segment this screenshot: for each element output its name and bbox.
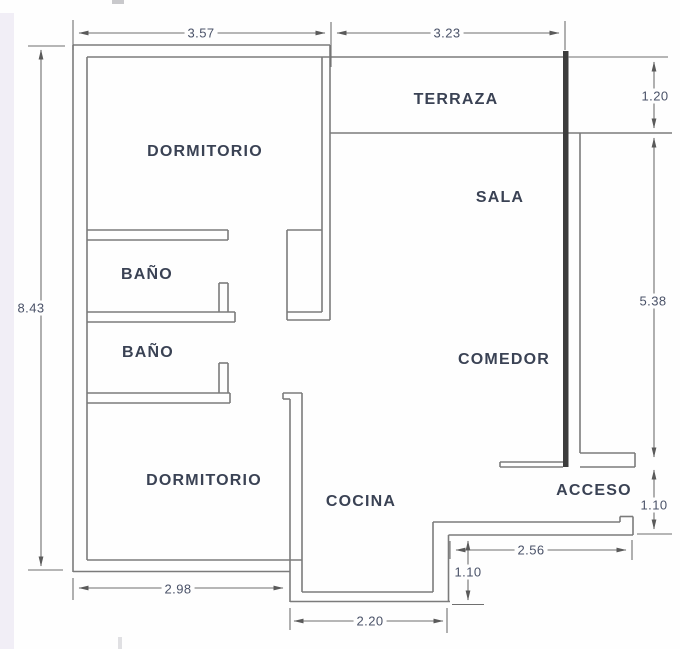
room-label-comedor: COMEDOR <box>458 351 550 369</box>
dim-width-top-right: 3.23 <box>431 26 464 41</box>
room-label-terraza: TERRAZA <box>414 91 499 109</box>
room-label-sala: SALA <box>476 189 524 207</box>
room-label-dormitorio-bottom: DORMITORIO <box>146 472 262 490</box>
dim-total-height-left: 8.43 <box>15 301 48 316</box>
dim-acceso-opening-height: 1.10 <box>638 498 671 513</box>
dimension-arrows <box>41 33 654 621</box>
dim-width-bottom-left: 2.98 <box>162 582 195 597</box>
room-label-cocina: COCINA <box>326 493 396 511</box>
room-label-dormitorio-top: DORMITORIO <box>147 143 263 161</box>
dim-sala-comedor-height: 5.38 <box>637 294 670 309</box>
dim-kitchen-bottom-width: 2.20 <box>354 614 387 629</box>
dim-kitchen-recess-depth: 1.10 <box>452 565 485 580</box>
room-label-bano-1: BAÑO <box>121 266 173 284</box>
walls <box>73 45 672 602</box>
floor-plan-page: DORMITORIO TERRAZA SALA BAÑO BAÑO COMEDO… <box>0 0 680 649</box>
dim-entry-wall-length: 2.56 <box>515 543 548 558</box>
dimension-ticks <box>28 20 672 633</box>
dim-width-top-left: 3.57 <box>185 26 218 41</box>
dim-terraza-depth: 1.20 <box>639 89 672 104</box>
room-label-acceso: ACCESO <box>556 482 632 500</box>
floor-plan-drawing <box>0 0 680 649</box>
room-label-bano-2: BAÑO <box>122 344 174 362</box>
wall-right-thick <box>563 51 569 467</box>
